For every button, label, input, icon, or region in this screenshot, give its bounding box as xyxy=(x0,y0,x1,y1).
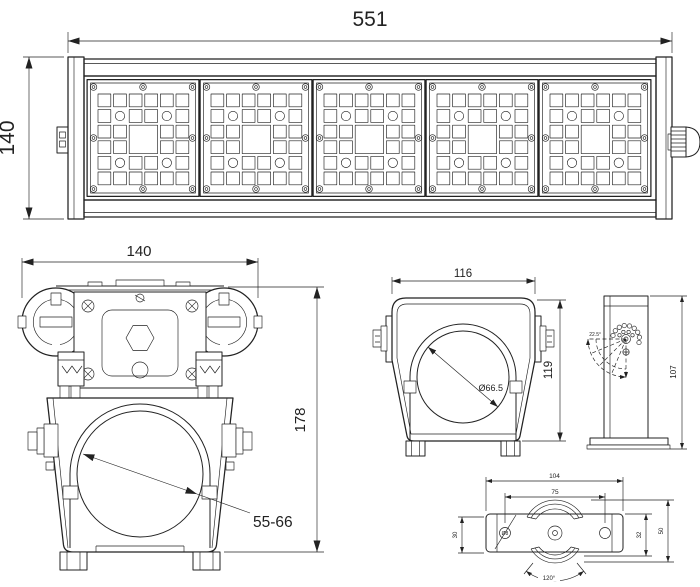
dim-front-width-group: 551 xyxy=(68,8,672,53)
dim-end-width: 140 xyxy=(126,243,151,260)
dim-plate-end-height-group: 30 xyxy=(453,517,484,553)
back-plate xyxy=(74,292,206,388)
pole-side-view: 22.5° 107 xyxy=(587,296,687,449)
dim-plate-overall-height: 50 xyxy=(659,527,665,534)
led-modules xyxy=(87,80,651,197)
dim-pole-height-group: 107 xyxy=(650,296,687,449)
dim-plate-width: 104 xyxy=(549,473,560,480)
top-rail xyxy=(84,59,656,76)
technical-drawing: 551 140 xyxy=(0,0,700,587)
dim-bracket-diameter: Ø66.5 xyxy=(478,383,503,393)
dim-bracket-width-group: 116 xyxy=(392,268,535,294)
dim-front-height: 140 xyxy=(0,120,19,155)
clamp-bracket xyxy=(28,398,252,570)
mounting-plate-view: Ø8 120° 104 75 30 32 xyxy=(453,473,674,582)
dim-plate-hole-pitch: 75 xyxy=(551,489,559,496)
dim-end-height: 178 xyxy=(292,407,309,432)
pole-flange xyxy=(590,438,668,445)
left-end-cap xyxy=(68,57,84,219)
dim-bracket-width: 116 xyxy=(454,268,472,280)
end-view: 140 178 55-66 xyxy=(18,243,324,570)
dim-front-height-group: 140 xyxy=(0,57,64,219)
mounting-clip xyxy=(57,127,68,153)
dim-plate-hole-diameter: Ø8 xyxy=(502,531,509,537)
bracket-front-view: 116 119 Ø66.5 xyxy=(373,268,566,456)
dim-plate-end-height: 30 xyxy=(453,531,459,538)
cable-gland xyxy=(668,127,700,157)
dim-pole-angle-step: 22.5° xyxy=(589,332,601,338)
dim-bracket-height: 119 xyxy=(543,361,555,379)
dim-pipe-range: 55-66 xyxy=(253,514,293,531)
front-view: 551 140 xyxy=(0,8,700,219)
dim-plate-angle: 120° xyxy=(543,576,556,582)
dim-front-width: 551 xyxy=(352,8,387,31)
bottom-rail xyxy=(84,200,656,217)
dim-plate-angle-group: 120° xyxy=(524,563,586,582)
dim-plate-body-height: 32 xyxy=(637,531,643,538)
dim-pole-height: 107 xyxy=(669,365,678,379)
